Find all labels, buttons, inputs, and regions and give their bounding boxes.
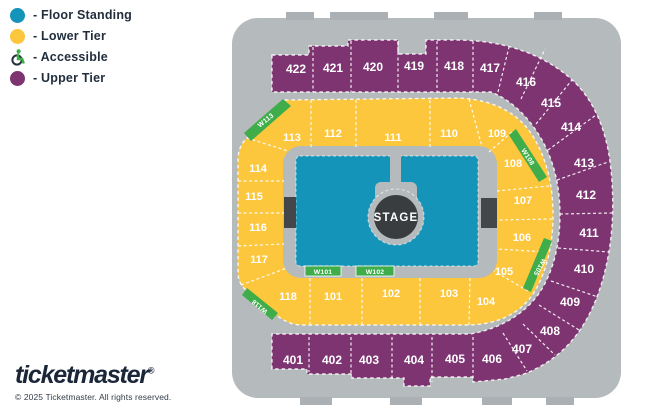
section-420-label[interactable]: 420 (363, 60, 383, 74)
section-411-label[interactable]: 411 (579, 226, 599, 240)
section-118-label[interactable]: 118 (279, 291, 297, 303)
section-114-label[interactable]: 114 (249, 163, 268, 175)
section-103-label[interactable]: 103 (440, 288, 458, 300)
section-104-label[interactable]: 104 (477, 296, 496, 308)
section-417-label[interactable]: 417 (480, 61, 500, 75)
section-115-label[interactable]: 115 (245, 191, 263, 203)
section-112-label[interactable]: 112 (324, 128, 342, 140)
copyright-text: © 2025 Ticketmaster. All rights reserved… (15, 392, 171, 402)
section-406-label[interactable]: 406 (482, 352, 502, 366)
section-108-label[interactable]: 108 (504, 158, 522, 170)
section-402-label[interactable]: 402 (322, 353, 342, 367)
footer: ticketmaster® © 2025 Ticketmaster. All r… (15, 363, 171, 402)
section-116-label[interactable]: 116 (249, 222, 267, 234)
arena-map: STAGE W113 W108 W105 W118 W101 W102 113 … (0, 0, 670, 410)
section-407-label[interactable]: 407 (512, 342, 532, 356)
section-410-label[interactable]: 410 (574, 262, 594, 276)
seat-map-page: - Floor Standing - Lower Tier - Accessib… (0, 0, 670, 410)
platform-right (481, 198, 497, 228)
section-404-label[interactable]: 404 (404, 353, 424, 367)
svg-text:W102: W102 (366, 269, 385, 276)
stage-label: STAGE (374, 212, 419, 224)
section-113-label[interactable]: 113 (283, 132, 301, 144)
section-412-label[interactable]: 412 (576, 188, 596, 202)
section-422-label[interactable]: 422 (286, 62, 306, 76)
section-405-label[interactable]: 405 (445, 352, 465, 366)
registered-mark: ® (148, 366, 155, 376)
platform-left (284, 197, 296, 228)
section-416-label[interactable]: 416 (516, 75, 536, 89)
section-409-label[interactable]: 409 (560, 295, 580, 309)
section-107-label[interactable]: 107 (514, 195, 532, 207)
section-401-label[interactable]: 401 (283, 353, 303, 367)
section-413-label[interactable]: 413 (574, 156, 594, 170)
section-419-label[interactable]: 419 (404, 59, 424, 73)
section-415-label[interactable]: 415 (541, 96, 561, 110)
section-102-label[interactable]: 102 (382, 288, 400, 300)
section-106-label[interactable]: 106 (513, 232, 531, 244)
section-418-label[interactable]: 418 (444, 59, 464, 73)
section-110-label[interactable]: 110 (440, 128, 458, 140)
svg-text:W101: W101 (314, 269, 333, 276)
section-403-label[interactable]: 403 (359, 353, 379, 367)
ticketmaster-logo: ticketmaster® (15, 363, 171, 388)
section-414-label[interactable]: 414 (561, 120, 581, 134)
section-421-label[interactable]: 421 (323, 61, 343, 75)
section-105-label[interactable]: 105 (495, 266, 513, 278)
section-408-label[interactable]: 408 (540, 324, 560, 338)
section-109-label[interactable]: 109 (488, 128, 506, 140)
section-117-label[interactable]: 117 (250, 254, 268, 266)
section-111-label[interactable]: 111 (384, 132, 401, 144)
section-101-label[interactable]: 101 (324, 291, 342, 303)
